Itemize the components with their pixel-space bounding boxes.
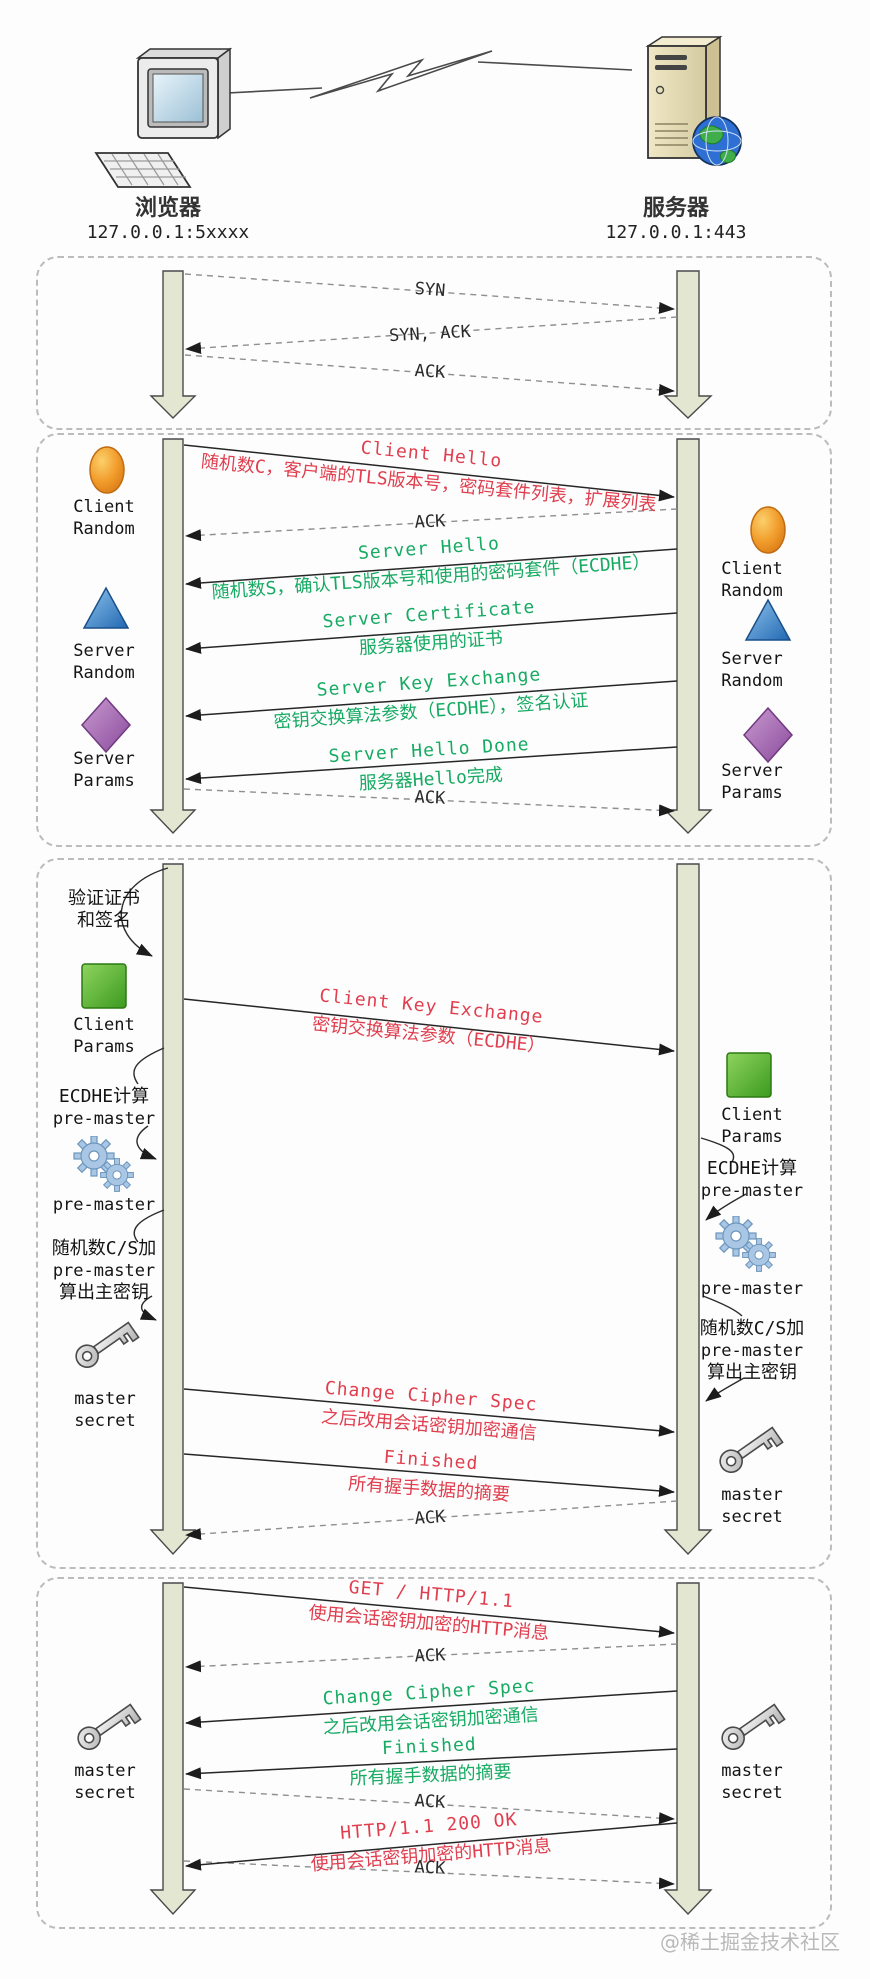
server-params-icon [742,706,794,764]
ecdhe-premaster-label: ECDHE计算 pre-master [39,1086,169,1130]
client-params-icon [725,1051,773,1099]
gears-icon [714,1216,780,1274]
master-secret-key-icon [68,1690,148,1760]
client-address: 127.0.0.1:5xxxx [78,222,258,243]
gears-icon [72,1136,138,1194]
server-title: 服务器 [596,190,756,222]
master-secret-label: master secret [710,1760,794,1804]
ecdhe-premaster-label: ECDHE计算 pre-master [687,1158,817,1202]
tls-handshake-diagram: 浏览器 127.0.0.1:5xxxx 服务器 127.0.0.1:443 [0,0,870,1979]
client-random-icon [86,444,128,496]
client-random-icon [747,504,789,556]
compute-master-label: 随机数C/S加 pre-master 算出主密钥 [687,1318,817,1384]
server-random-label: Server Random [710,648,794,692]
pre-master-label: pre-master [692,1278,812,1300]
client-params-label: Client Params [62,1014,146,1058]
client-params-icon [80,962,128,1010]
server-random-icon [82,586,130,630]
server-address: 127.0.0.1:443 [586,222,766,243]
server-params-label: Server Params [710,760,794,804]
server-random-label: Server Random [62,640,146,684]
watermark: @稀土掘金技术社区 [540,1926,840,1955]
annotation-curves [121,868,746,1401]
master-secret-label: master secret [710,1484,794,1528]
compute-master-label: 随机数C/S加 pre-master 算出主密钥 [39,1238,169,1304]
lightning-icon [208,51,632,98]
browser-computer-icon [88,33,238,198]
verify-cert-label: 验证证书 和签名 [39,888,169,932]
server-icon [628,28,748,170]
master-secret-key-icon [66,1308,146,1378]
client-params-label: Client Params [710,1104,794,1148]
globe-icon [693,117,741,165]
master-secret-label: master secret [63,1388,147,1432]
client-random-label: Client Random [710,558,794,602]
master-secret-label: master secret [63,1760,147,1804]
master-secret-key-icon [710,1413,790,1483]
master-secret-key-icon [712,1690,792,1760]
client-random-label: Client Random [62,496,146,540]
pre-master-label: pre-master [44,1194,164,1216]
server-params-icon [80,696,132,754]
server-params-label: Server Params [62,748,146,792]
server-random-icon [744,598,792,642]
client-title: 浏览器 [88,190,248,222]
